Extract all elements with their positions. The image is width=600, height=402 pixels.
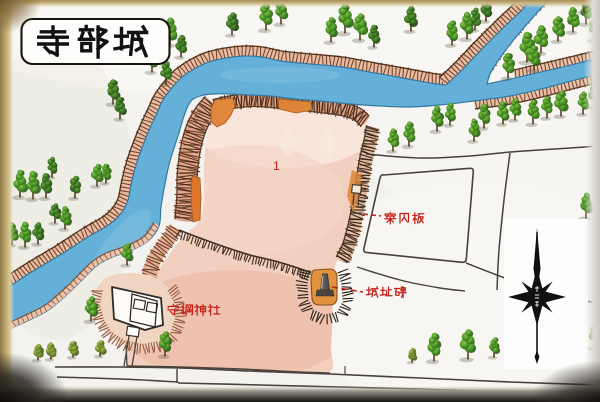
svg-text:1: 1 <box>273 159 280 173</box>
